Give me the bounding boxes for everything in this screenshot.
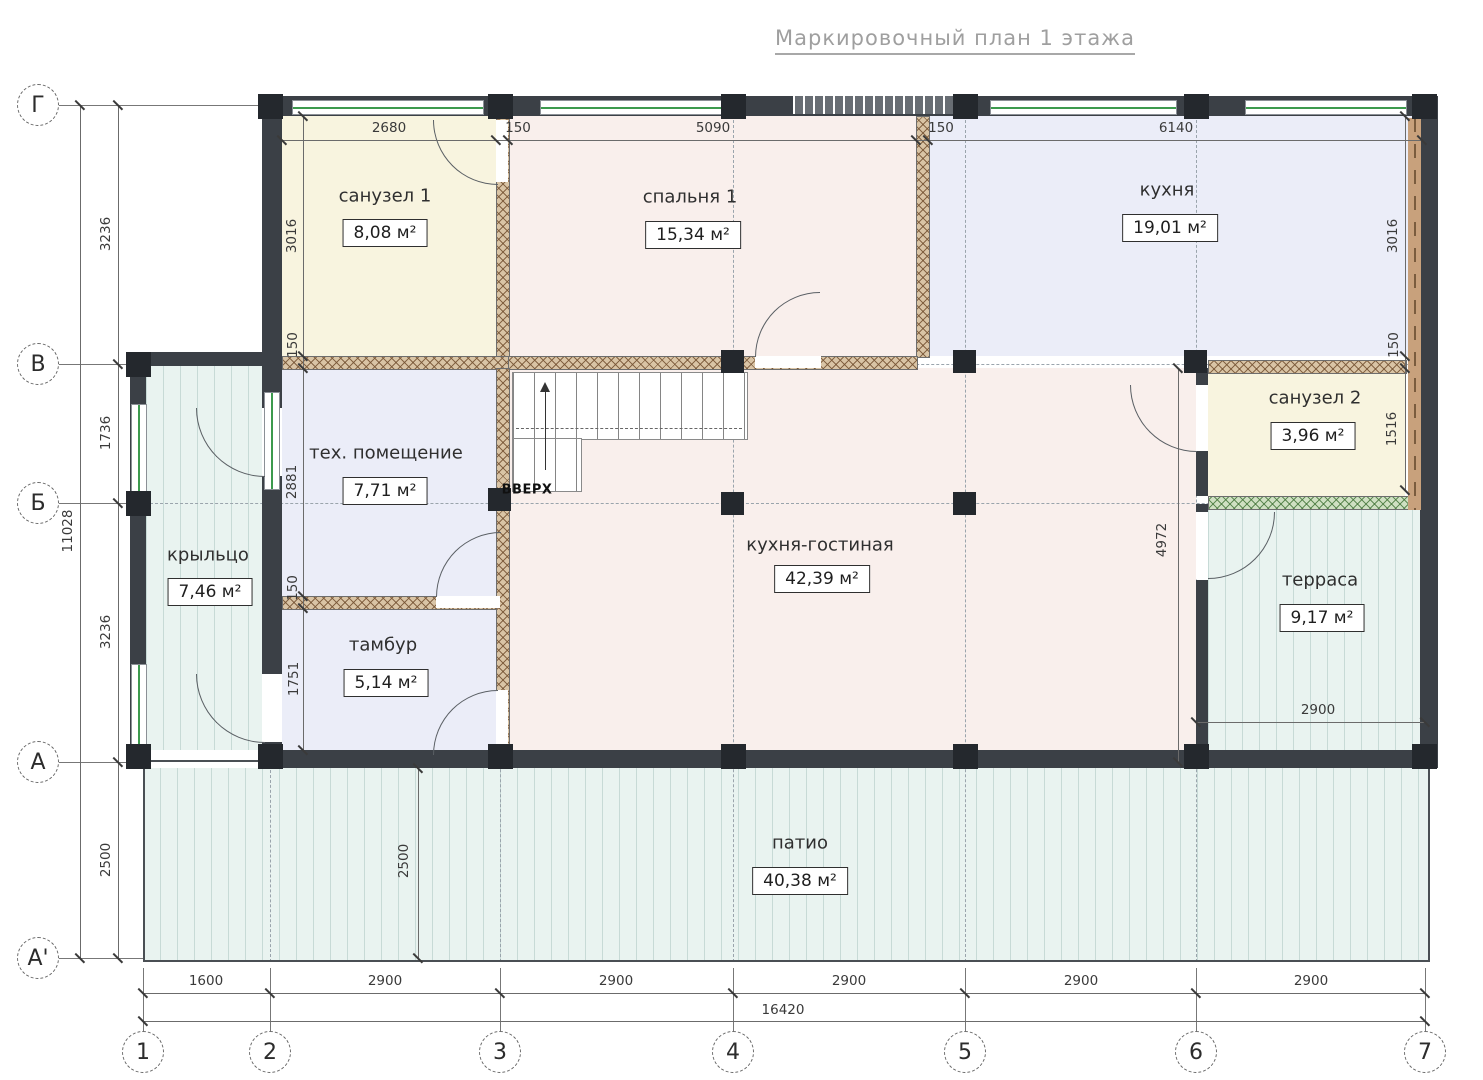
dim-label: 4972: [1154, 523, 1170, 557]
louver-panel-north: [793, 96, 977, 114]
axis-circle-row-a: А: [17, 741, 59, 783]
dim-label: 2680: [372, 120, 406, 136]
door-gap-spalnya: [755, 356, 821, 368]
column: [258, 744, 283, 769]
dim-label: 3236: [98, 615, 114, 649]
page-title: Маркировочный план 1 этажа: [775, 26, 1135, 55]
dim-label: 150: [285, 575, 301, 601]
area-badge: 7,46 м²: [168, 578, 253, 606]
axis-circle-col-1: 1: [122, 1031, 164, 1073]
column: [953, 350, 976, 373]
axis-circle-col-5: 5: [944, 1031, 986, 1073]
dim-total-bottom-line: [143, 1021, 1425, 1022]
patio-edge-west: [143, 768, 145, 962]
column: [1184, 350, 1207, 373]
window-west-teh: [264, 392, 280, 490]
dim-chain-left: [118, 105, 119, 958]
partition-spalnya-south: [508, 356, 918, 370]
room-label: крыльцо: [167, 545, 249, 566]
deck-patio: [143, 768, 1428, 962]
column: [126, 352, 151, 377]
area-badge: 19,01 м²: [1122, 214, 1218, 242]
dim-label: 2881: [284, 465, 300, 499]
axis-circle-row-v: В: [17, 343, 59, 385]
axis-circle-row-b: Б: [17, 482, 59, 524]
door-gap-west-lower: [262, 674, 282, 742]
dim-chain-inner-right: [1405, 116, 1406, 490]
dim-label: 2900: [1301, 702, 1335, 718]
partition-spalnya-kuhnya: [916, 116, 930, 358]
axis-circle-col-4: 4: [712, 1031, 754, 1073]
dim-line-patio-depth: [418, 768, 419, 958]
room-label: санузел 2: [1269, 388, 1362, 409]
dim-chain-top: [282, 140, 1422, 141]
axis-dash-2: [270, 770, 271, 962]
axis-circle-col-7: 7: [1404, 1031, 1446, 1073]
dim-label: 150: [285, 332, 301, 358]
axis-circle-row-g: Г: [17, 84, 59, 126]
dim-chain-inner-left: [303, 116, 304, 750]
dim-label: 5090: [696, 120, 730, 136]
dim-label: 2900: [368, 973, 402, 989]
dim-label: 2900: [832, 973, 866, 989]
partition-sanuzel2-south: [1208, 496, 1422, 510]
area-badge: 5,14 м²: [344, 669, 429, 697]
area-badge: 3,96 м²: [1271, 422, 1356, 450]
dim-label: 2900: [599, 973, 633, 989]
column: [721, 94, 746, 119]
column: [721, 744, 746, 769]
area-badge: 8,08 м²: [343, 219, 428, 247]
dim-label: 3016: [284, 219, 300, 253]
partition-sanuzel2-north: [1208, 360, 1407, 374]
area-badge: 9,17 м²: [1280, 604, 1365, 632]
axis-line: [59, 105, 262, 106]
axis-circle-col-2: 2: [249, 1031, 291, 1073]
column: [953, 744, 978, 769]
dim-label-total: 16420: [762, 1002, 805, 1018]
dim-label: 2500: [396, 844, 412, 878]
dim-label: 1516: [1384, 412, 1400, 446]
door-gap-teh: [436, 596, 500, 608]
area-badge: 15,34 м²: [645, 221, 741, 249]
window-porch-1: [131, 404, 147, 494]
column: [1184, 744, 1209, 769]
column: [258, 94, 283, 119]
wall-living-east-stub: [1196, 504, 1208, 512]
axis-dash-5: [965, 120, 966, 962]
wall-east: [1420, 96, 1438, 768]
dim-label: 2500: [98, 843, 114, 877]
area-badge: 7,71 м²: [343, 477, 428, 505]
dim-label: 3016: [1385, 219, 1401, 253]
window-porch-2: [131, 664, 147, 750]
dim-label: 1600: [189, 973, 223, 989]
room-label: тамбур: [349, 635, 417, 656]
room-label: кухня: [1140, 180, 1195, 201]
dim-label: 150: [505, 120, 531, 136]
dim-label: 1751: [286, 662, 302, 696]
column: [488, 94, 513, 119]
column: [126, 491, 151, 516]
dim-label: 1736: [98, 416, 114, 450]
dim-label: 2900: [1294, 973, 1328, 989]
column: [721, 492, 744, 515]
room-label: патио: [772, 833, 828, 854]
column: [953, 94, 978, 119]
window-north-1: [292, 100, 484, 115]
room-label: кухня-гостиная: [746, 535, 893, 556]
dim-total-left-line: [80, 105, 81, 958]
room-label: тех. помещение: [309, 443, 463, 464]
stairs-direction-line: [545, 392, 546, 470]
door-gap-sanuzel2: [1196, 385, 1208, 451]
patio-edge-east: [1428, 768, 1430, 962]
window-north-4: [1245, 100, 1407, 115]
column: [953, 492, 976, 515]
door-gap-terrasa: [1196, 512, 1208, 578]
dim-label: 6140: [1159, 120, 1193, 136]
stairs-walkline: [516, 428, 742, 429]
axis-circle-col-6: 6: [1175, 1031, 1217, 1073]
column: [126, 744, 151, 769]
dim-label-total: 11028: [60, 510, 76, 553]
axis-line: [59, 958, 143, 959]
room-label: терраса: [1282, 570, 1358, 591]
room-label: спальня 1: [643, 187, 738, 208]
area-badge: 40,38 м²: [752, 867, 848, 895]
column: [1412, 94, 1437, 119]
column: [1412, 744, 1437, 769]
dim-label: 2900: [1064, 973, 1098, 989]
dim-line-living-depth: [1178, 368, 1179, 762]
floor-plan-canvas: Маркировочный план 1 этажа ВВЕРХ: [0, 0, 1483, 1080]
partition-sanuzel1-south: [282, 356, 510, 370]
dim-chain-bottom: [143, 993, 1425, 994]
dim-label: 3236: [98, 217, 114, 251]
window-north-2: [540, 100, 722, 115]
patio-edge-south: [143, 960, 1430, 962]
stairs-up-arrow: [540, 382, 550, 392]
dim-line-terrasa-width: [1196, 722, 1425, 723]
stairs-label: ВВЕРХ: [502, 483, 553, 498]
axis-circle-col-3: 3: [479, 1031, 521, 1073]
room-label: санузел 1: [339, 186, 432, 207]
dim-label: 150: [1386, 332, 1402, 358]
porch-edge-south: [146, 760, 262, 762]
window-north-3: [990, 100, 1177, 115]
area-badge: 42,39 м²: [774, 565, 870, 593]
dim-label: 150: [928, 120, 954, 136]
axis-circle-row-a1: А': [17, 937, 59, 979]
column: [488, 744, 513, 769]
column: [721, 350, 744, 373]
wood-clad-wall-east: [1408, 118, 1421, 510]
column: [1184, 94, 1209, 119]
